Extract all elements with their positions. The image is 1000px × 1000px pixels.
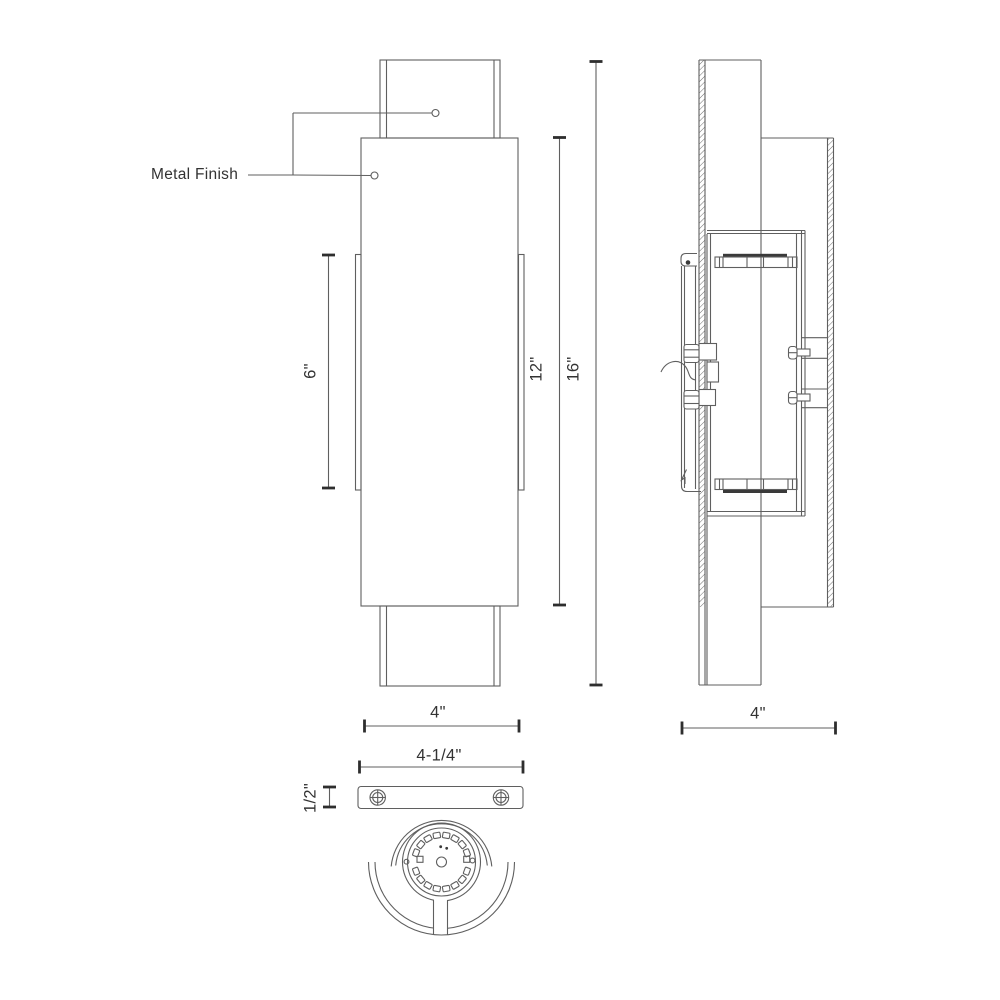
side-wire <box>661 361 696 380</box>
front-main-body <box>361 138 518 606</box>
side-top-lamp <box>715 254 797 268</box>
side-view <box>661 60 836 735</box>
front-top-tube <box>380 60 500 138</box>
dim-label-4-1-4in: 4-1/4" <box>416 747 461 766</box>
metal-finish-callout-leader <box>248 110 439 180</box>
dim-label-1-2in: 1/2" <box>302 783 321 813</box>
front-bottom-tube <box>380 606 500 686</box>
dim-label-4in-side: 4" <box>750 705 766 724</box>
bottom-plate-screw-right <box>493 790 508 805</box>
metal-finish-label: Metal Finish <box>151 166 238 184</box>
drawing-linework <box>0 0 1000 1000</box>
bottom-lamp-holder <box>369 820 515 935</box>
bottom-view <box>323 761 523 936</box>
bottom-side-contact-left <box>417 856 423 862</box>
dimension-16in <box>590 62 603 686</box>
side-backplate-wall <box>761 138 834 607</box>
dimension-1-2in <box>323 787 336 807</box>
bottom-stem <box>434 899 448 935</box>
side-cover-plate <box>681 254 701 492</box>
side-hex-bolt-upper <box>684 344 717 363</box>
dim-label-4in-front: 4" <box>430 704 446 723</box>
side-bracket-tab <box>707 362 719 382</box>
dimension-6in <box>322 255 335 488</box>
dim-label-6in: 6" <box>302 363 321 379</box>
technical-drawing-canvas: Metal Finish 6" 12" 16" 4" 4" 4-1/4" 1/2… <box>0 0 1000 1000</box>
dim-label-12in: 12" <box>528 356 547 381</box>
front-view <box>248 60 603 733</box>
side-mounting-bracket <box>707 231 805 517</box>
side-bottom-lamp <box>715 479 797 493</box>
front-right-flange <box>519 255 525 491</box>
bottom-plate-screw-left <box>370 790 385 805</box>
front-left-flange <box>356 255 362 491</box>
dim-label-16in: 16" <box>565 356 584 381</box>
bottom-side-contact-right <box>464 856 470 862</box>
side-front-face-section <box>699 60 705 685</box>
side-wall-screw-upper <box>789 338 828 359</box>
side-wall-screw-lower <box>789 389 828 408</box>
